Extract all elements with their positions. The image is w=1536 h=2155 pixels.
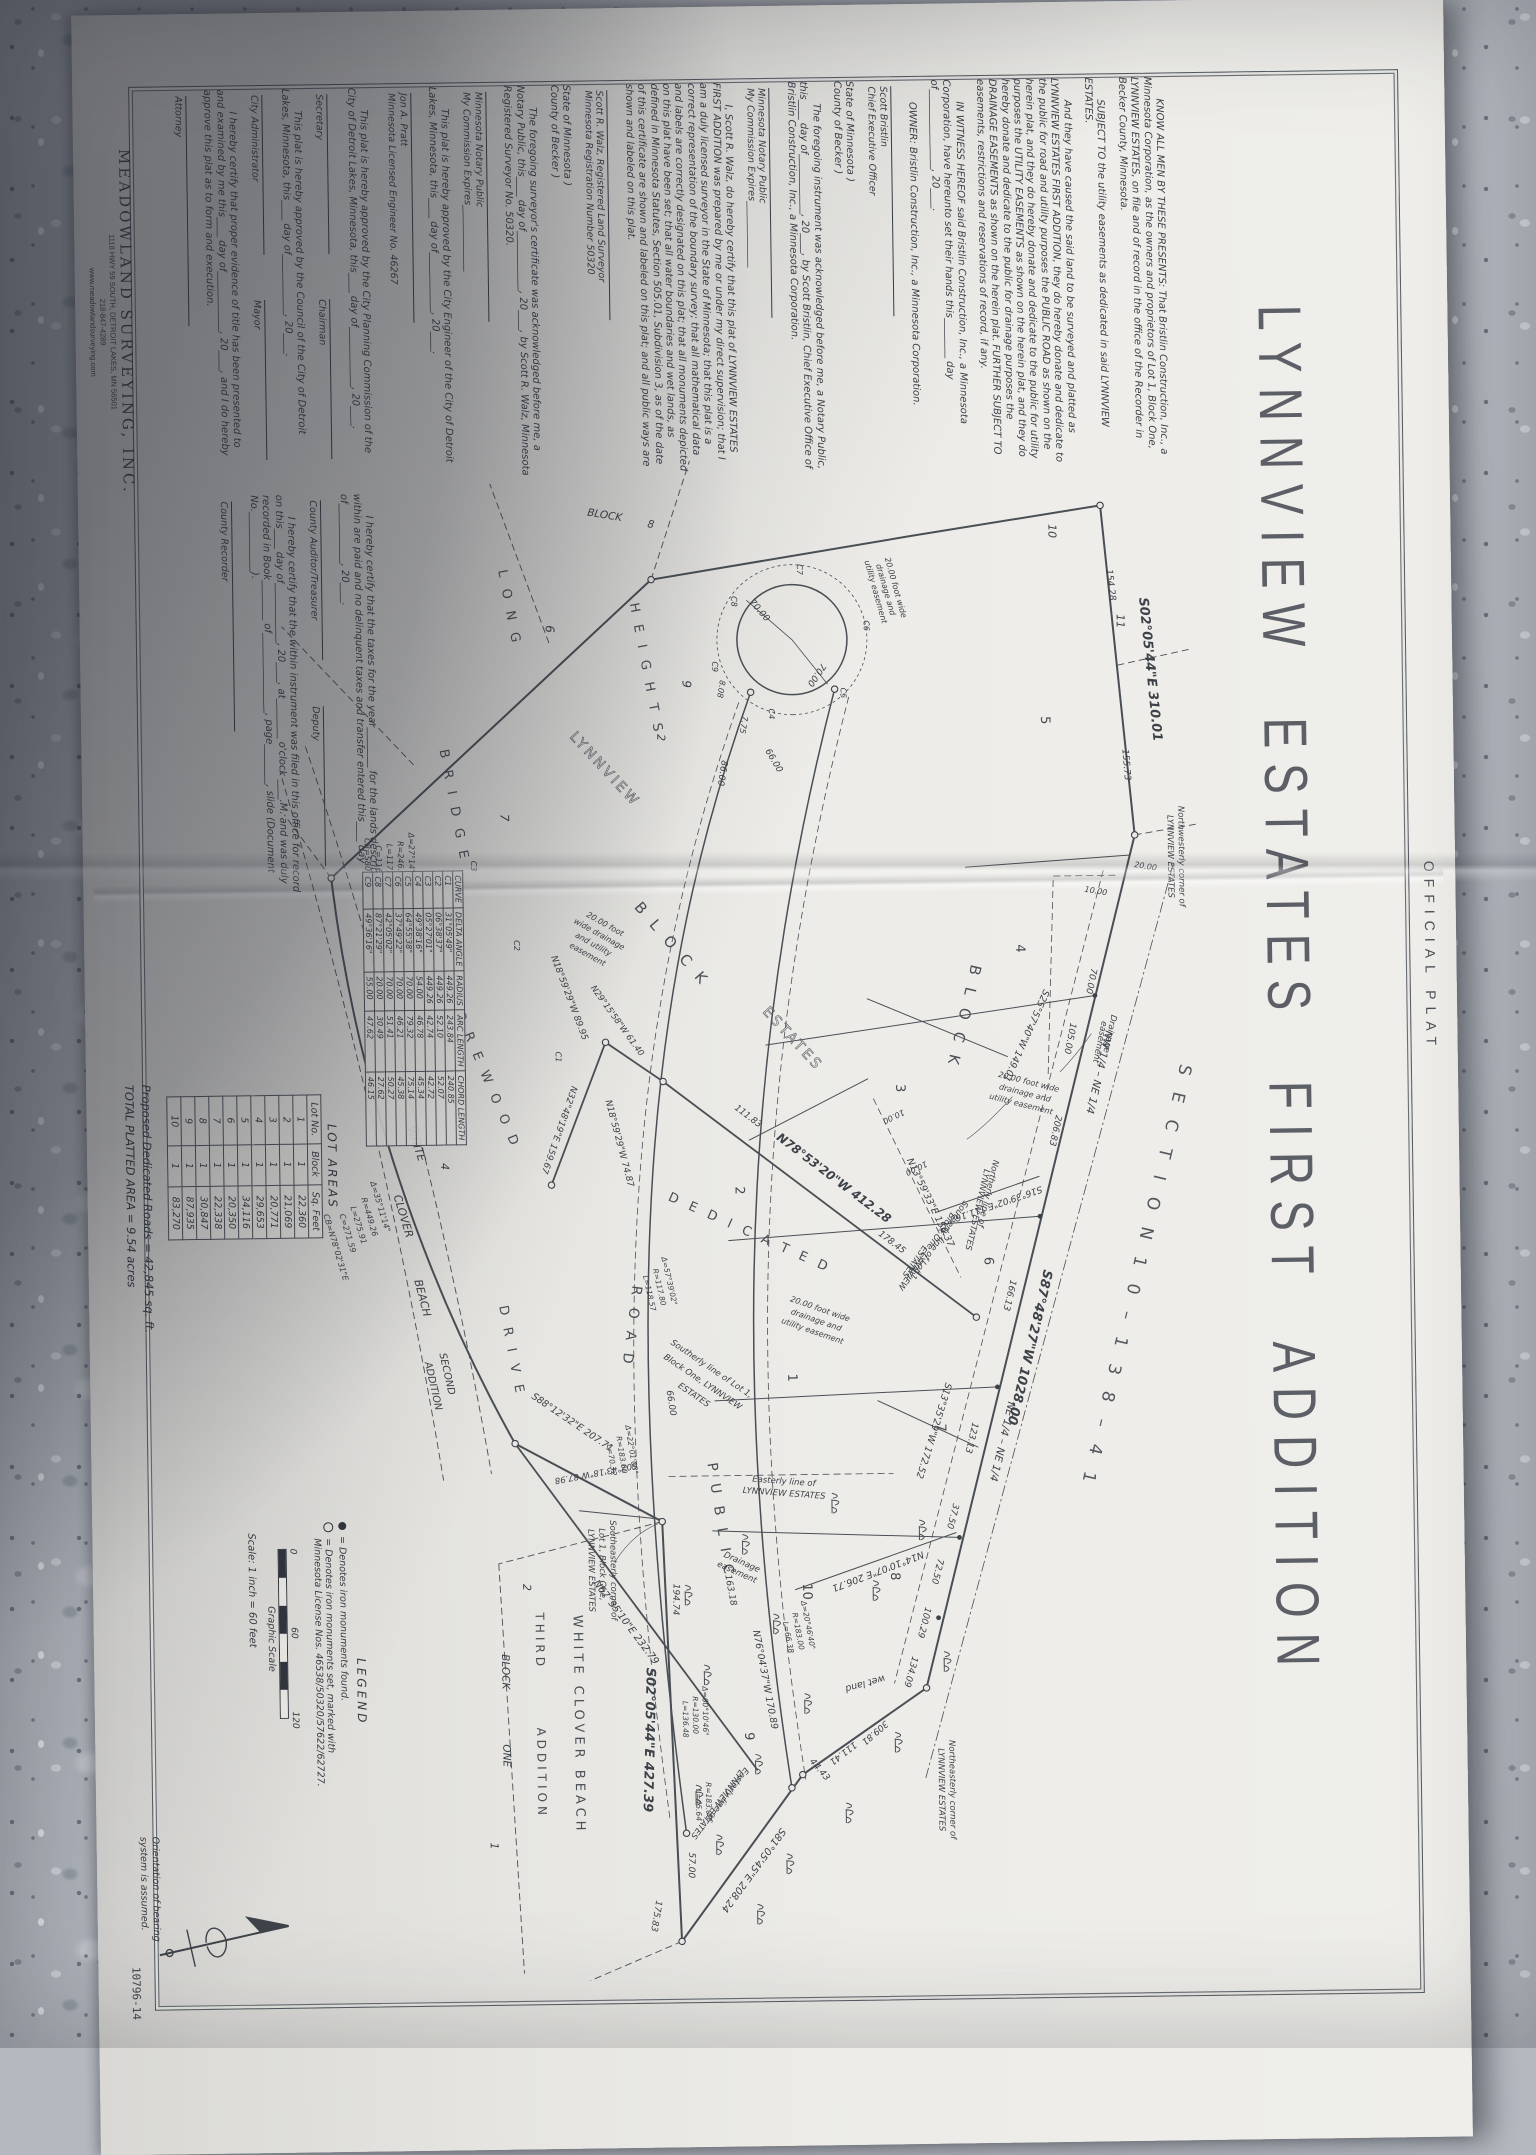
table-cell: C5 bbox=[403, 871, 414, 908]
table-row: 3120,771 bbox=[265, 1095, 281, 1239]
signature-pair: SecretaryChairman bbox=[313, 94, 333, 468]
marsh-symbol bbox=[895, 1732, 902, 1752]
signature-block: Jon A. PrattMinnesota Licensed Engineer … bbox=[384, 93, 414, 343]
set-monument-marker bbox=[1131, 832, 1137, 838]
set-monument-marker bbox=[328, 875, 334, 881]
table-header: Lot No. bbox=[307, 1095, 322, 1144]
map-label: LYNNVIEW ESTATES bbox=[1164, 815, 1175, 899]
graphic-scale-bar: 0 60 120 Graphic Scale bbox=[265, 1549, 301, 1729]
set-monument-marker bbox=[602, 1039, 608, 1045]
table-cell: 70.00 bbox=[384, 972, 395, 1012]
table-row: 5134,116 bbox=[237, 1096, 253, 1240]
table-cell: 42.74 bbox=[425, 1011, 436, 1072]
signature-block: Attorney bbox=[171, 96, 189, 346]
table-cell: 1 bbox=[279, 1144, 294, 1185]
table-cell: 37°49'22" bbox=[393, 908, 404, 972]
table-cell: C1 bbox=[443, 871, 454, 908]
table-cell: 1 bbox=[265, 1144, 280, 1185]
table-cell: 2 bbox=[279, 1095, 294, 1144]
graphic-scale-caption: Graphic Scale bbox=[265, 1549, 279, 1729]
map-label: 175.83 bbox=[648, 1900, 663, 1933]
adjacent-lot-lines bbox=[279, 454, 1197, 879]
table-cell: 34,116 bbox=[238, 1185, 253, 1239]
certificate-paragraph: The foregoing surveyor's certificate was… bbox=[500, 85, 543, 477]
marsh-symbol bbox=[717, 1835, 724, 1855]
north-arrow-icon bbox=[142, 1882, 319, 1994]
marsh-symbol bbox=[787, 1854, 794, 1874]
table-cell: 45.38 bbox=[395, 1072, 406, 1146]
map-label: 4 bbox=[1012, 944, 1027, 952]
map-label: C7 bbox=[795, 564, 804, 576]
orientation-line1: Orientation of bearing bbox=[148, 1837, 163, 2017]
table-cell: 46.21 bbox=[395, 1011, 406, 1072]
map-label: 163.18 bbox=[722, 1574, 738, 1607]
table-header: CHORD LENGTH bbox=[455, 1071, 466, 1145]
map-label: 5 bbox=[1037, 716, 1052, 724]
set-monument-marker bbox=[747, 689, 753, 695]
map-label: L=136.48 bbox=[681, 1701, 691, 1738]
map-label: C4 bbox=[767, 709, 776, 720]
map-label: L O N G bbox=[494, 568, 523, 647]
map-label: 86.00 bbox=[715, 760, 729, 787]
map-label: C3 bbox=[469, 861, 478, 872]
map-label: 57.00 bbox=[686, 1852, 697, 1878]
map-label: C5 bbox=[839, 688, 848, 699]
table-header: CURVE bbox=[453, 871, 464, 908]
map-label: NE 1/4 – NE 1/4 bbox=[987, 1401, 1017, 1483]
map-label: 6 bbox=[981, 1257, 996, 1265]
map-label: ONE bbox=[500, 1744, 512, 1767]
map-label: N14°10'07"E 206.71 bbox=[830, 1548, 925, 1593]
certificate-paragraph: State of Minnesota ) County of Becker ) bbox=[546, 85, 576, 477]
map-label: B L O C K bbox=[631, 898, 714, 990]
table-cell: 75.14 bbox=[405, 1072, 416, 1146]
map-label: 8.08 bbox=[715, 680, 727, 699]
certificate-paragraph: This plat is hereby approved by the City… bbox=[343, 88, 373, 468]
table-cell: 6 bbox=[223, 1096, 238, 1145]
table-cell: 22,338 bbox=[210, 1186, 225, 1240]
table-header: ARC LENGTH bbox=[455, 1010, 466, 1071]
scale-tick-120: 120 bbox=[290, 1711, 300, 1728]
table-row: 2121,069 bbox=[279, 1095, 295, 1239]
table-cell: 20.00 bbox=[374, 972, 385, 1012]
certificate-paragraph: IN WITNESS HEREOF said Bristlin Construc… bbox=[926, 79, 969, 471]
table-cell: 10 bbox=[167, 1097, 182, 1146]
found-monument-marker bbox=[936, 1615, 941, 1620]
map-label: BLOCK bbox=[586, 507, 624, 525]
curve-table: CURVEDELTA ANGLERADIUSARC LENGTHCHORD LE… bbox=[362, 870, 467, 1146]
table-row: 4129,653 bbox=[251, 1096, 267, 1240]
map-label: 155.73 bbox=[1119, 749, 1132, 781]
table-cell: 05°27'01" bbox=[423, 908, 434, 972]
table-cell: 9 bbox=[181, 1097, 196, 1146]
table-cell: 7 bbox=[209, 1096, 224, 1145]
map-label: 111.41 bbox=[827, 1739, 858, 1766]
table-header: Sq. Feet bbox=[308, 1184, 323, 1238]
map-label: S88°12'32"E 207.71 bbox=[529, 1391, 615, 1454]
map-label: 66.00 bbox=[762, 747, 784, 774]
table-row: 8130,847 bbox=[195, 1096, 211, 1240]
set-monument-marker bbox=[660, 1078, 666, 1084]
map-label: THIRD bbox=[532, 1611, 547, 1670]
job-number: 10796-14 bbox=[129, 1967, 143, 2020]
table-cell: 46.78 bbox=[415, 1011, 426, 1072]
signature-block: Minnesota Notary PublicMy Commission Exp… bbox=[460, 92, 490, 342]
signature-block: Minnesota Notary PublicMy Commission Exp… bbox=[743, 88, 773, 338]
map-label: 154.28 bbox=[1103, 569, 1117, 602]
map-label: C6 bbox=[862, 620, 871, 631]
table-cell: C9 bbox=[363, 872, 374, 909]
table-cell: 55.00 bbox=[364, 972, 375, 1012]
table-cell: 45.34 bbox=[415, 1072, 426, 1146]
map-label: 66.00 bbox=[664, 1390, 678, 1417]
found-monument-marker bbox=[957, 1535, 962, 1540]
table-cell: 47.62 bbox=[365, 1012, 376, 1073]
certificate-paragraph: And they have caused the said land to be… bbox=[973, 78, 1078, 471]
table-cell: 52.07 bbox=[435, 1071, 446, 1145]
map-label: LYNNVIEW ESTATES bbox=[935, 1748, 946, 1832]
scale-tick-0: 0 bbox=[288, 1549, 298, 1555]
totals-note: Proposed Dedicated Roads = 42,845 sq. ft… bbox=[120, 1085, 158, 1334]
map-label: WHITE CLOVER BEACH bbox=[570, 1615, 588, 1835]
certificate-paragraph: KNOW ALL MEN BY THESE PRESENTS: That Bri… bbox=[1115, 76, 1170, 469]
found-monument-icon bbox=[338, 1522, 346, 1530]
table-cell: C3 bbox=[423, 871, 434, 908]
map-label: 9 bbox=[741, 1732, 756, 1740]
table-cell: 27.62 bbox=[375, 1072, 386, 1146]
map-label: S02°05'44"E 427.39 bbox=[640, 1668, 658, 1813]
table-cell: C6 bbox=[393, 872, 404, 909]
table-cell: 31°05'49" bbox=[443, 907, 454, 971]
marsh-symbol bbox=[846, 1803, 853, 1823]
table-cell: 1 bbox=[209, 1145, 224, 1186]
map-label: 134.09 bbox=[901, 1655, 919, 1688]
map-label: S81°05'45"E 208.24 bbox=[719, 1826, 788, 1914]
map-label: 166.13 bbox=[1000, 1279, 1017, 1312]
certificate-paragraph: This plat is hereby approved by the Coun… bbox=[278, 88, 308, 468]
certificate-paragraph: I, Scott R. Walz, do hereby certify that… bbox=[622, 82, 739, 476]
table-cell: 20,771 bbox=[266, 1185, 281, 1239]
map-label: Δ=60°10'46" bbox=[701, 1685, 711, 1735]
table-cell: 1 bbox=[293, 1144, 308, 1185]
map-label: 7 bbox=[497, 814, 511, 822]
set-monument-marker bbox=[512, 1440, 518, 1446]
map-label: 7.75 bbox=[738, 715, 750, 734]
table-cell: 50.27 bbox=[385, 1072, 396, 1146]
map-label: 100.29 bbox=[915, 1606, 932, 1639]
marsh-symbol bbox=[755, 1754, 762, 1774]
certificate-paragraph: The foregoing instrument was acknowledge… bbox=[784, 81, 827, 473]
table-cell: 49°38'16" bbox=[413, 908, 424, 972]
certificate-paragraph: OWNER: Bristlin Construction, Inc., a Mi… bbox=[905, 80, 923, 472]
signature-label: Chairman bbox=[316, 299, 330, 468]
map-label: LYNNVIEW bbox=[566, 729, 643, 810]
table-cell: 49°36'16" bbox=[363, 909, 374, 973]
map-label: 10.00 bbox=[881, 1108, 906, 1126]
map-label: B R I D G E bbox=[436, 748, 472, 864]
set-monument-marker bbox=[800, 1771, 806, 1777]
set-monument-marker bbox=[683, 1830, 689, 1836]
road-edge-south bbox=[639, 692, 767, 1833]
map-label: R=130.00 bbox=[691, 1696, 701, 1734]
table-cell: 46.15 bbox=[365, 1072, 376, 1146]
map-label: 20.00 bbox=[1134, 860, 1158, 873]
table-cell: 87,935 bbox=[182, 1186, 197, 1240]
marsh-symbol bbox=[805, 1694, 812, 1714]
set-monument-marker bbox=[659, 1518, 665, 1524]
set-monument-marker bbox=[973, 1314, 979, 1320]
set-monument-marker bbox=[789, 1785, 795, 1791]
map-label: wet land bbox=[843, 1672, 886, 1694]
surveyor-firm-stamp: MEADOWLAND SURVEYING, INC. 1118 HWY 59 S… bbox=[85, 149, 138, 495]
map-label: N29°15'58"W 61.40 bbox=[588, 984, 646, 1059]
map-label: N18°59'29"W 89.95 bbox=[548, 954, 589, 1042]
map-label: Northeasterly corner of bbox=[946, 1740, 957, 1841]
table-cell: C4 bbox=[413, 871, 424, 908]
table-cell: 5 bbox=[237, 1096, 252, 1145]
official-plat-label: OFFICIAL PLAT bbox=[1421, 861, 1440, 1053]
map-label: 111.83 bbox=[732, 1103, 763, 1130]
marsh-symbol bbox=[742, 1534, 749, 1554]
table-cell: 1 bbox=[237, 1145, 252, 1186]
marsh-symbol bbox=[685, 1585, 692, 1605]
certificate-paragraph: I hereby certify that proper evidence of… bbox=[200, 89, 242, 469]
map-label: BLOCK bbox=[499, 1654, 512, 1690]
map-labels: S02°05'44"E 310.01154.28155.7320.0010.00… bbox=[312, 498, 1207, 1937]
map-label: 2 bbox=[654, 734, 667, 741]
map-label: 8 bbox=[647, 518, 656, 531]
table-cell: 29,653 bbox=[252, 1185, 267, 1239]
table-cell: 1 bbox=[251, 1144, 266, 1185]
platted-area-total: TOTAL PLATTED AREA = 9.54 acres bbox=[120, 1085, 141, 1334]
set-monument-marker bbox=[1097, 502, 1103, 508]
set-monument-marker bbox=[831, 686, 837, 692]
signature-block: Scott BristlinChief Executive Officer bbox=[865, 86, 895, 336]
map-label: C8 bbox=[729, 596, 738, 607]
map-label: ADDITION bbox=[534, 1727, 549, 1819]
table-cell: 1 bbox=[223, 1145, 238, 1186]
table-cell: 42°05'02" bbox=[383, 908, 394, 972]
table-cell: 79.32 bbox=[405, 1011, 416, 1072]
table-row: 6120,350 bbox=[223, 1096, 239, 1240]
certificate-paragraph: This plat is hereby approved by the City… bbox=[425, 86, 455, 478]
table-cell: C2 bbox=[433, 871, 444, 908]
marsh-symbol bbox=[704, 1665, 711, 1685]
lot-lines bbox=[570, 855, 1140, 1593]
map-label: 1 bbox=[784, 1374, 799, 1382]
certificate-paragraph: State of Minnesota ) County of Becker ) bbox=[830, 81, 860, 473]
scale-tick-60: 60 bbox=[289, 1627, 299, 1639]
table-row: 1122,360 bbox=[293, 1095, 309, 1239]
set-monument-marker bbox=[923, 1685, 929, 1691]
map-label: LYNNVIEW ESTATES bbox=[585, 1529, 596, 1613]
certificate-paragraph: SUBJECT TO the utility easements as dedi… bbox=[1081, 77, 1111, 469]
table-row: 10183,270 bbox=[167, 1097, 183, 1241]
table-row: 9187,935 bbox=[181, 1097, 197, 1241]
map-label: 10 bbox=[1045, 524, 1058, 538]
table-cell: 1 bbox=[293, 1095, 308, 1144]
set-monument-marker bbox=[648, 576, 654, 582]
marsh-symbol bbox=[758, 1904, 765, 1924]
map-label: 11 bbox=[1114, 614, 1127, 628]
dedicated-roads-total: Proposed Dedicated Roads = 42,845 sq. ft… bbox=[137, 1085, 158, 1334]
set-monument-marker bbox=[679, 1938, 685, 1944]
table-cell: 449.26 bbox=[434, 971, 445, 1011]
map-label: 9 bbox=[679, 680, 693, 688]
table-row: 7122,338 bbox=[209, 1096, 225, 1240]
map-label: R O A D bbox=[618, 1285, 644, 1369]
map-label: 2 bbox=[520, 1584, 533, 1591]
table-cell: 243.84 bbox=[445, 1010, 456, 1071]
map-label: 194.74 bbox=[670, 1584, 681, 1616]
map-label: S E C T I O N 1 0 – 1 3 8 – 4 1 bbox=[1076, 1062, 1195, 1490]
map-label: 105.00 bbox=[1061, 1022, 1077, 1055]
certificates-column-a: This plat is hereby approved by the City… bbox=[161, 88, 373, 471]
table-cell: 42.72 bbox=[425, 1071, 436, 1145]
table-cell: 87°21'29" bbox=[373, 908, 384, 972]
signature-label: Secretary bbox=[313, 94, 327, 263]
set-monument-marker bbox=[548, 1182, 554, 1188]
table-cell: 54.00 bbox=[414, 971, 425, 1011]
marsh-symbol bbox=[832, 1493, 839, 1513]
map-label: N76°04'37"W 170.89 bbox=[750, 1629, 780, 1730]
map-label: 10 bbox=[799, 1583, 814, 1600]
signature-block: County Recorder bbox=[218, 501, 236, 751]
table-cell: 70.00 bbox=[394, 972, 405, 1012]
table-cell: 06°38'37" bbox=[433, 908, 444, 972]
certificates-column-main: KNOW ALL MEN BY THESE PRESENTS: That Bri… bbox=[374, 76, 1169, 479]
table-header: Block bbox=[307, 1144, 322, 1185]
map-label: 1 bbox=[488, 1842, 501, 1849]
table-cell: 449.26 bbox=[424, 971, 435, 1011]
table-cell: 4 bbox=[251, 1096, 266, 1145]
signature-label: City Administrator bbox=[247, 95, 261, 264]
table-cell: 20,350 bbox=[224, 1185, 239, 1239]
signature-pair: City AdministratorMayor bbox=[247, 95, 267, 469]
map-label: 123.13 bbox=[962, 1421, 979, 1454]
map-label: S02°05'44"E 310.01 bbox=[1135, 597, 1165, 742]
marsh-symbol bbox=[944, 1652, 951, 1672]
map-label: 8 bbox=[887, 1572, 902, 1580]
table-cell: 1 bbox=[167, 1146, 182, 1187]
lot-areas-title: LOT AREAS bbox=[324, 1094, 340, 1239]
map-label: C1 bbox=[554, 1052, 563, 1063]
table-cell: 30.49 bbox=[375, 1011, 386, 1072]
table-cell: 3 bbox=[265, 1095, 280, 1144]
signature-block: Scott R. Walz, Registered Land SurveyorM… bbox=[581, 90, 611, 340]
table-cell: 30,847 bbox=[196, 1186, 211, 1240]
paper-sheet: OFFICIAL PLAT LYNNVIEW ESTATES FIRST ADD… bbox=[71, 0, 1473, 2155]
signature-label: Mayor bbox=[250, 300, 264, 469]
table-cell: 8 bbox=[195, 1096, 210, 1145]
table-cell: C8 bbox=[373, 872, 384, 909]
map-label: C2 bbox=[512, 940, 521, 951]
plat-document: OFFICIAL PLAT LYNNVIEW ESTATES FIRST ADD… bbox=[81, 11, 1459, 2040]
lot-areas-table: LOT AREAS Lot No.BlockSq. Feet1122,36021… bbox=[166, 1094, 340, 1241]
map-label: 10.00 bbox=[1084, 885, 1108, 898]
table-cell: 64°55'38" bbox=[403, 908, 414, 972]
table-cell: 52.10 bbox=[435, 1011, 446, 1072]
table-cell: 21,069 bbox=[280, 1185, 295, 1239]
map-label: R=183.00 bbox=[704, 1782, 714, 1820]
table-cell: 1 bbox=[195, 1145, 210, 1186]
map-label: H E I G H T S bbox=[626, 602, 666, 737]
table-header: RADIUS bbox=[454, 971, 465, 1011]
set-monument-icon bbox=[323, 1522, 333, 1532]
map-label: C9 bbox=[710, 661, 719, 672]
section-line bbox=[913, 864, 1186, 1778]
map-label: Northwesterly corner of bbox=[1175, 806, 1186, 909]
legend-found-text: = Denotes iron monuments found. bbox=[336, 1536, 349, 1701]
table-cell: 240.85 bbox=[445, 1071, 456, 1145]
map-label: L=45.64 bbox=[694, 1789, 703, 1821]
plat-map: S02°05'44"E 310.01154.28155.7320.0010.00… bbox=[275, 434, 1230, 1991]
table-header: DELTA ANGLE bbox=[453, 907, 464, 971]
map-label: 37.50 bbox=[944, 1502, 960, 1530]
map-label: 6 bbox=[543, 625, 557, 633]
map-label: 7 bbox=[933, 1423, 948, 1431]
table-cell: 51.41 bbox=[385, 1011, 396, 1072]
table-cell: 1 bbox=[181, 1145, 196, 1186]
label-leaders bbox=[607, 1034, 1098, 1563]
map-label: 3 bbox=[892, 1084, 907, 1092]
map-label: S25°57'40"W 149.01 bbox=[1000, 988, 1051, 1083]
map-label: D R I V E bbox=[495, 1304, 527, 1398]
table-cell: 70.00 bbox=[404, 971, 415, 1011]
map-label: D E D I C A T E D bbox=[666, 1190, 834, 1276]
map-label: BEACH bbox=[411, 1278, 433, 1318]
map-label: 70.00 bbox=[747, 598, 772, 624]
marsh-symbol bbox=[873, 1581, 880, 1601]
legend: LEGEND = Denotes iron monuments found. =… bbox=[245, 1522, 371, 1864]
table-cell: 22,360 bbox=[294, 1184, 309, 1238]
table-cell: 83,270 bbox=[168, 1186, 183, 1240]
table-cell: 449.26 bbox=[444, 971, 455, 1011]
map-label: 72.50 bbox=[929, 1558, 945, 1586]
map-label: N18°59'29"W 74.87 bbox=[603, 1099, 636, 1189]
map-label: 4 bbox=[438, 1163, 451, 1170]
map-label: B L O C K bbox=[943, 963, 985, 1070]
table-cell: C7 bbox=[383, 872, 394, 909]
map-label: 2 bbox=[732, 1186, 747, 1194]
marsh-symbol bbox=[774, 1614, 781, 1634]
